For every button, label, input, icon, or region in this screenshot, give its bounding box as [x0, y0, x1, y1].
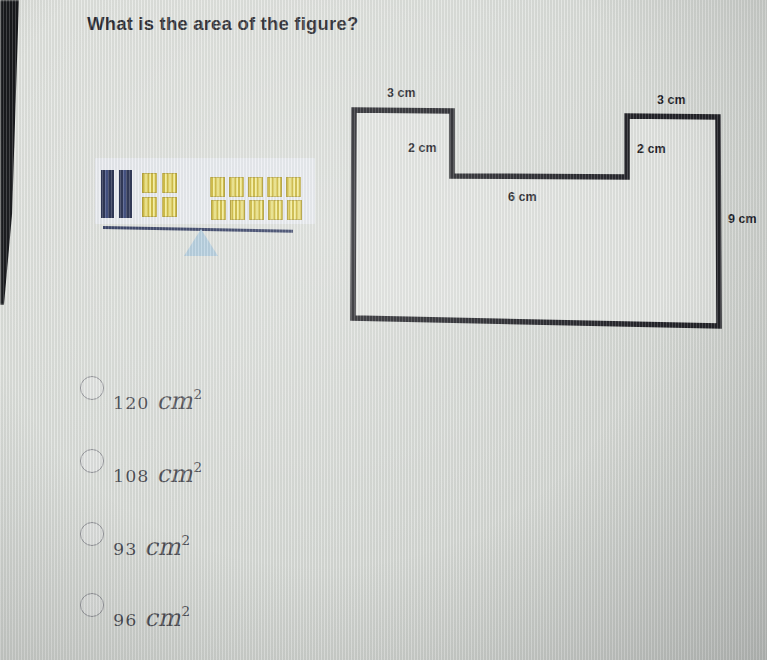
dim-label-top-right: 3 cm	[657, 93, 686, 107]
radio-button[interactable]	[80, 522, 104, 546]
answer-option-label: 93 cm 2	[113, 533, 190, 561]
answer-option-label: 120 cm 2	[113, 387, 202, 415]
block-icon	[268, 200, 283, 220]
answer-exponent: 2	[181, 532, 190, 548]
answer-option-label: 96 cm 2	[113, 604, 190, 632]
screen-edge-shadow	[0, 0, 22, 305]
block-icon	[249, 200, 264, 220]
quiz-page: What is the area of the figure? 3 cm 3 c…	[0, 0, 767, 660]
radio-button[interactable]	[80, 593, 104, 617]
balance-fulcrum-triangle-icon	[184, 229, 218, 256]
answer-value: 108	[113, 466, 149, 486]
dim-label-top-left: 3 cm	[387, 86, 416, 100]
block-icon	[162, 197, 177, 217]
radio-button[interactable]	[80, 449, 104, 473]
answer-option-108[interactable]: 108 cm 2	[80, 449, 202, 488]
answer-option-label: 108 cm 2	[113, 460, 202, 488]
block-icon	[229, 177, 244, 197]
dim-label-notch-bottom: 6 cm	[508, 190, 537, 204]
question-title: What is the area of the figure?	[87, 13, 358, 35]
answer-exponent: 2	[194, 386, 203, 402]
area-figure: 3 cm 3 cm 2 cm 2 cm 6 cm 9 cm	[340, 85, 767, 343]
answer-value: 96	[113, 610, 137, 630]
block-icon	[142, 173, 157, 193]
block-icon	[162, 173, 177, 193]
figure-outline	[340, 85, 767, 343]
block-icon	[142, 197, 157, 217]
tens-rod-icon	[101, 170, 114, 218]
tens-rod-icon	[119, 170, 132, 218]
dim-label-right-side: 9 cm	[728, 212, 757, 226]
block-icon	[267, 177, 282, 197]
answer-value: 120	[113, 393, 149, 413]
block-icon	[286, 177, 301, 197]
answer-exponent: 2	[181, 603, 190, 619]
answer-option-93[interactable]: 93 cm 2	[80, 522, 190, 561]
block-icon	[210, 177, 225, 197]
answer-unit: cm	[156, 460, 192, 488]
answer-unit: cm	[156, 387, 192, 415]
block-icon	[211, 200, 226, 220]
dim-label-notch-left: 2 cm	[408, 141, 437, 155]
dim-label-notch-right: 2 cm	[637, 142, 666, 156]
answer-unit: cm	[144, 604, 180, 632]
answer-exponent: 2	[194, 459, 203, 475]
answer-option-120[interactable]: 120 cm 2	[80, 376, 202, 415]
block-icon	[248, 177, 263, 197]
answer-unit: cm	[144, 533, 180, 561]
answer-value: 93	[113, 539, 137, 559]
radio-button[interactable]	[80, 376, 104, 400]
block-icon	[287, 200, 302, 220]
answer-option-96[interactable]: 96 cm 2	[80, 593, 190, 632]
balance-scale-illustration	[92, 155, 320, 267]
block-icon	[230, 200, 245, 220]
